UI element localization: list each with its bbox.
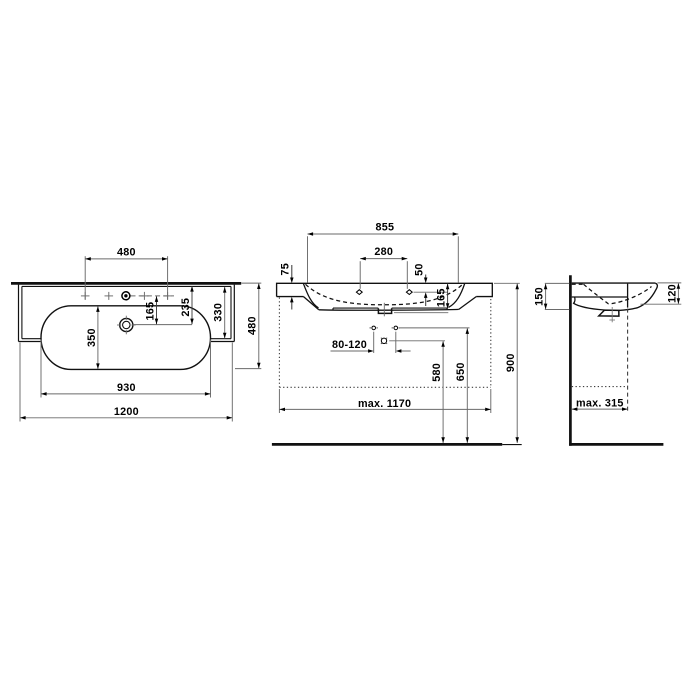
svg-text:350: 350 (86, 328, 98, 347)
svg-text:75: 75 (280, 263, 292, 276)
svg-text:50: 50 (414, 263, 426, 276)
svg-text:930: 930 (117, 382, 136, 394)
svg-text:1200: 1200 (114, 406, 139, 418)
svg-text:max. 315: max. 315 (576, 398, 624, 410)
svg-text:max. 1170: max. 1170 (358, 398, 411, 410)
svg-text:480: 480 (117, 246, 136, 258)
svg-text:150: 150 (534, 287, 546, 306)
svg-text:855: 855 (376, 222, 395, 234)
svg-text:80-120: 80-120 (332, 339, 367, 351)
svg-text:280: 280 (374, 246, 393, 258)
svg-text:235: 235 (180, 298, 192, 317)
svg-text:165: 165 (436, 288, 448, 307)
svg-text:480: 480 (247, 316, 259, 335)
svg-text:580: 580 (431, 363, 443, 382)
svg-text:330: 330 (213, 303, 225, 322)
svg-text:650: 650 (455, 362, 467, 381)
svg-text:120: 120 (666, 284, 678, 303)
svg-text:165: 165 (144, 302, 156, 321)
svg-text:900: 900 (505, 353, 517, 372)
